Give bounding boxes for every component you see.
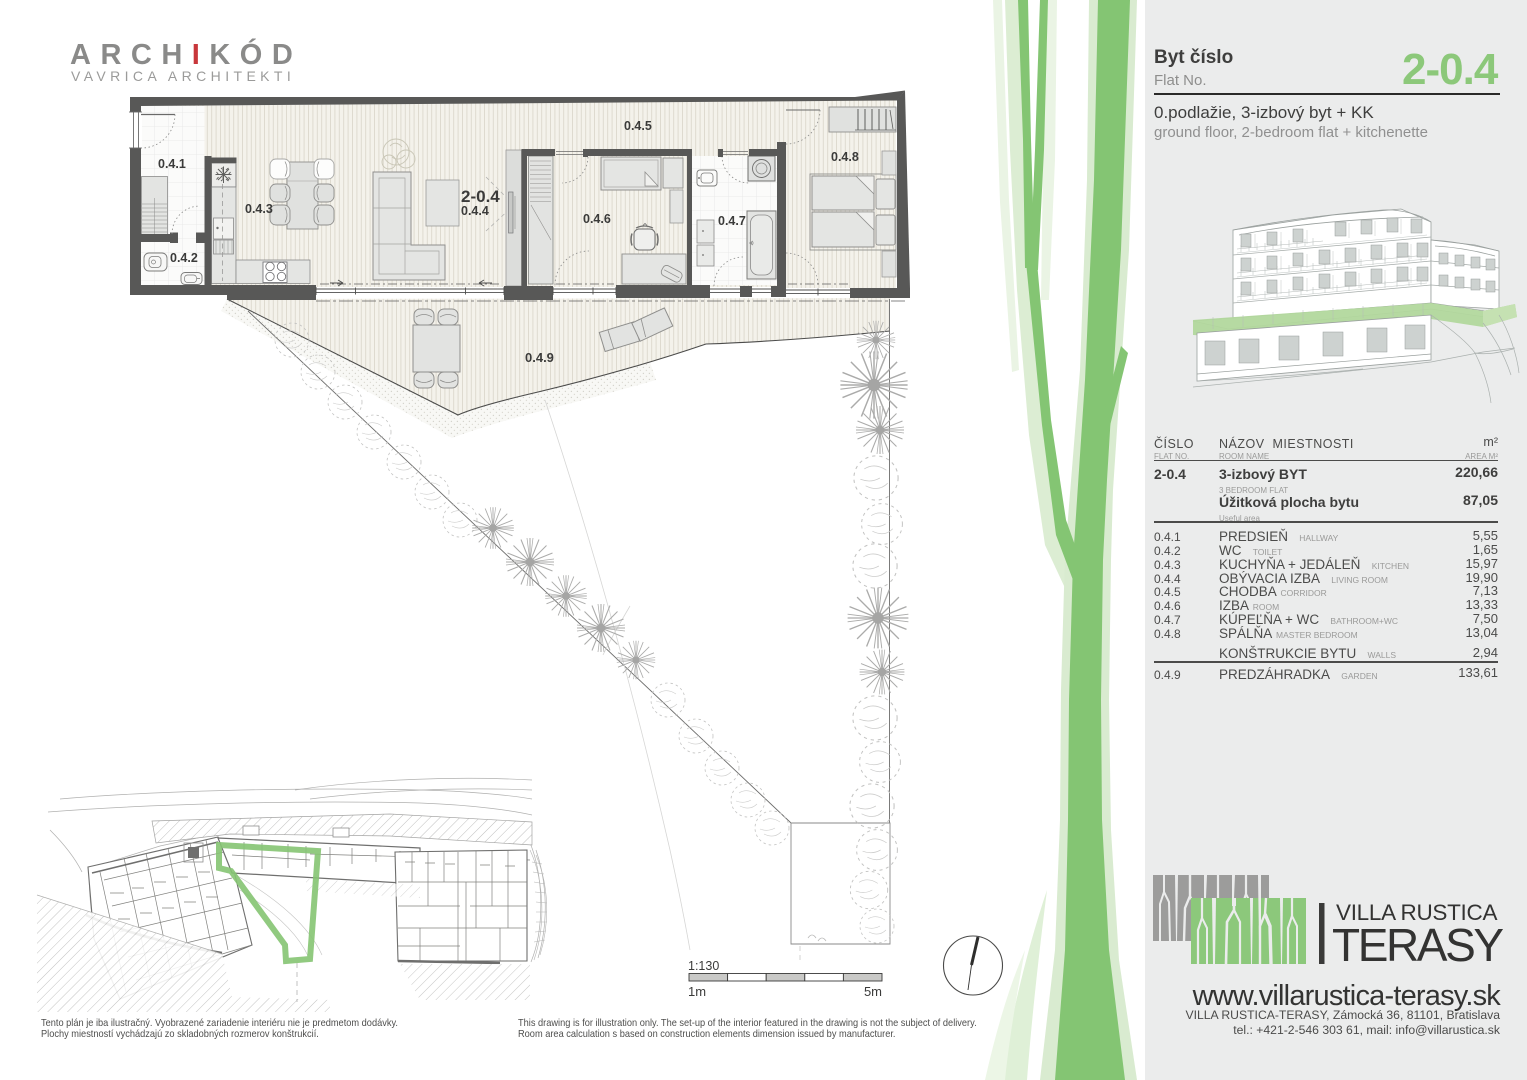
svg-text:0.4.2: 0.4.2 [170, 251, 198, 265]
svg-text:0.4.5: 0.4.5 [624, 119, 652, 133]
svg-text:0.4.9: 0.4.9 [525, 350, 554, 365]
svg-text:0.4.3: 0.4.3 [245, 202, 273, 216]
svg-text:0.4.7: 0.4.7 [718, 214, 746, 228]
svg-text:0.4.8: 0.4.8 [831, 150, 859, 164]
svg-text:0.4.6: 0.4.6 [583, 212, 611, 226]
svg-text:5m: 5m [864, 984, 882, 999]
svg-text:1:130: 1:130 [688, 959, 719, 973]
svg-text:1m: 1m [688, 984, 706, 999]
svg-text:0.4.4: 0.4.4 [461, 204, 489, 218]
svg-text:0.4.1: 0.4.1 [158, 157, 186, 171]
